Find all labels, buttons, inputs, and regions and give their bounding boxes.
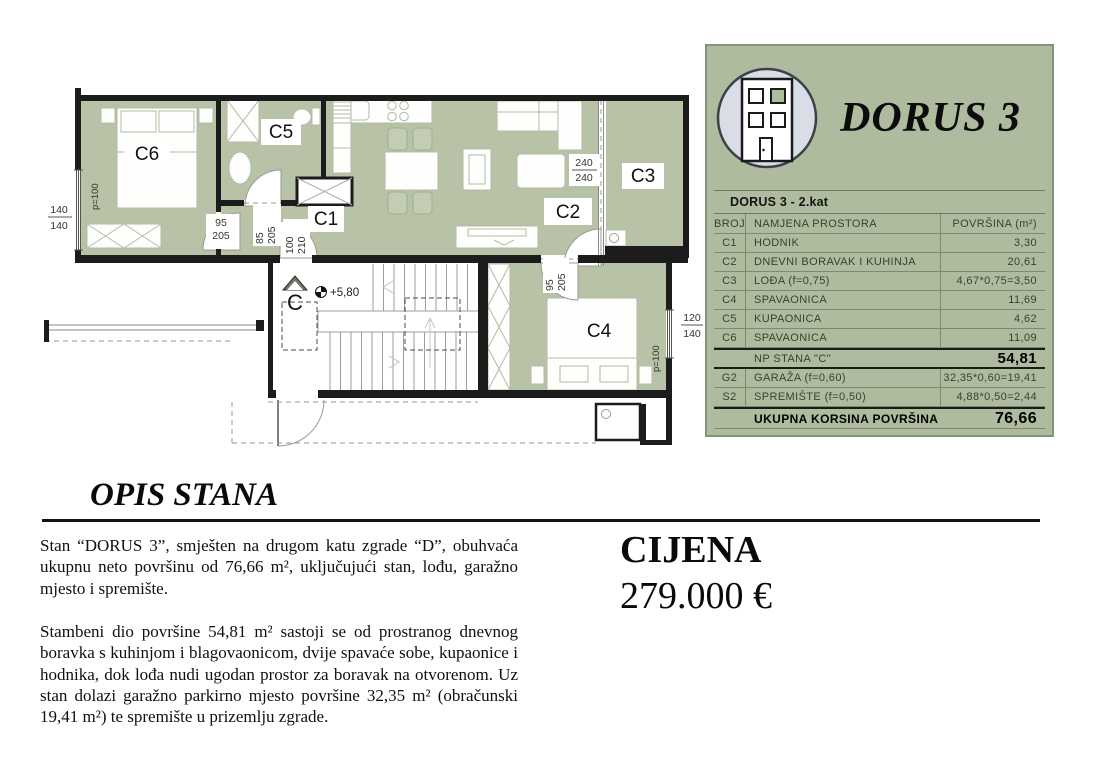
total-label: UKUPNA KORSINA POVRŠINA bbox=[746, 409, 941, 428]
divider-rule bbox=[42, 519, 1040, 522]
col-namjena: NAMJENA PROSTORA bbox=[746, 214, 941, 233]
section-marker: C +5,80 bbox=[283, 276, 359, 315]
brochure-page: C +5,80 C6 C5 C1 C2 C3 C4 140 140 120 bbox=[0, 0, 1095, 774]
dim-right-2: 140 bbox=[683, 328, 701, 340]
elevation-label: +5,80 bbox=[330, 287, 359, 299]
table-row: G2 GARAŽA (f=0,60) 32,35*0,60=19,41 bbox=[714, 369, 1045, 388]
shaft bbox=[297, 178, 352, 205]
alcove bbox=[596, 404, 640, 440]
info-panel: DORUS 3 DORUS 3 - 2.kat BROJ NAMJENA PRO… bbox=[705, 44, 1054, 437]
cell-namjena: GARAŽA (f=0,60) bbox=[746, 369, 941, 387]
cell-povrsina: 11,69 bbox=[941, 291, 1045, 309]
subtotal-row: NP STANA "C" 54,81 bbox=[714, 348, 1045, 369]
cell-povrsina: 3,30 bbox=[941, 234, 1045, 252]
door-c6-h: 205 bbox=[212, 230, 230, 242]
room-label-c6: C6 bbox=[135, 144, 159, 165]
room-label-c3: C3 bbox=[631, 166, 655, 187]
cell-broj: C2 bbox=[714, 253, 746, 271]
cell-namjena: KUPAONICA bbox=[746, 310, 941, 328]
cell-broj: G2 bbox=[714, 369, 746, 387]
floor-plan: C +5,80 C6 C5 C1 C2 C3 C4 140 140 120 bbox=[0, 0, 710, 470]
room-label-c4: C4 bbox=[587, 321, 612, 342]
room-label-c2: C2 bbox=[556, 202, 580, 223]
door-entry-w: 100 bbox=[284, 236, 296, 254]
door-c5-w: 85 bbox=[254, 232, 266, 244]
table-row: C6 SPAVAONICA 11,09 bbox=[714, 329, 1045, 348]
cell-namjena: SPAVAONICA bbox=[746, 329, 941, 347]
dim-balcony-1: 240 bbox=[575, 157, 593, 169]
cell-broj bbox=[714, 350, 746, 367]
cell-povrsina: 20,61 bbox=[941, 253, 1045, 271]
logo-row: DORUS 3 bbox=[707, 46, 1052, 190]
parapet-right: p=100 bbox=[651, 345, 662, 372]
window-right bbox=[665, 310, 674, 358]
dim-right-1: 120 bbox=[683, 312, 701, 324]
cell-namjena: LOĐA (f=0,75) bbox=[746, 272, 941, 290]
price-label: CIJENA bbox=[620, 528, 761, 572]
cell-povrsina: 4,62 bbox=[941, 310, 1045, 328]
room-label-c5: C5 bbox=[269, 122, 293, 143]
subtotal-label: NP STANA "C" bbox=[746, 350, 941, 367]
door-c6-w: 95 bbox=[215, 217, 227, 229]
cell-broj bbox=[714, 409, 746, 428]
table-row: C3 LOĐA (f=0,75) 4,67*0,75=3,50 bbox=[714, 272, 1045, 291]
cell-povrsina: 32,35*0,60=19,41 bbox=[941, 369, 1045, 387]
dim-left-1: 140 bbox=[50, 204, 68, 216]
cell-namjena: DNEVNI BORAVAK I KUHINJA bbox=[746, 253, 941, 271]
cell-broj: S2 bbox=[714, 388, 746, 406]
description-paragraph-1: Stan “DORUS 3”, smješten na drugom katu … bbox=[40, 535, 518, 599]
table-row: C5 KUPAONICA 4,62 bbox=[714, 310, 1045, 329]
door-c4-w: 95 bbox=[544, 279, 556, 291]
cell-broj: C6 bbox=[714, 329, 746, 347]
cell-broj: C3 bbox=[714, 272, 746, 290]
col-povrsina: POVRŠINA (m²) bbox=[941, 214, 1045, 233]
table-row: C4 SPAVAONICA 11,69 bbox=[714, 291, 1045, 310]
cell-povrsina: 11,09 bbox=[941, 329, 1045, 347]
total-row: UKUPNA KORSINA POVRŠINA 76,66 bbox=[714, 407, 1045, 429]
col-broj: BROJ bbox=[714, 214, 746, 233]
cell-namjena: HODNIK bbox=[746, 234, 941, 252]
cell-broj: C1 bbox=[714, 234, 746, 252]
price-value: 279.000 € bbox=[620, 574, 772, 618]
total-value: 76,66 bbox=[941, 409, 1045, 428]
building-icon bbox=[715, 66, 819, 170]
section-letter: C bbox=[287, 290, 303, 315]
dim-left-2: 140 bbox=[50, 220, 68, 232]
cell-broj: C4 bbox=[714, 291, 746, 309]
dim-balcony-2: 240 bbox=[575, 172, 593, 184]
staircase bbox=[282, 264, 478, 390]
table-title: DORUS 3 - 2.kat bbox=[714, 190, 1045, 214]
table-row: C2 DNEVNI BORAVAK I KUHINJA 20,61 bbox=[714, 253, 1045, 272]
parapet-left: p=100 bbox=[90, 183, 101, 210]
subtotal-value: 54,81 bbox=[941, 350, 1045, 367]
area-table: DORUS 3 - 2.kat BROJ NAMJENA PROSTORA PO… bbox=[714, 190, 1045, 429]
cell-povrsina: 4,67*0,75=3,50 bbox=[941, 272, 1045, 290]
cell-namjena: SPREMIŠTE (f=0,50) bbox=[746, 388, 941, 406]
table-row: C1 HODNIK 3,30 bbox=[714, 234, 1045, 253]
project-title: DORUS 3 bbox=[819, 94, 1042, 142]
door-c4-h: 205 bbox=[556, 273, 568, 291]
cell-broj: C5 bbox=[714, 310, 746, 328]
room-label-c1: C1 bbox=[314, 209, 338, 230]
cell-povrsina: 4,88*0,50=2,44 bbox=[941, 388, 1045, 406]
description-paragraph-2: Stambeni dio površine 54,81 m² sastoji s… bbox=[40, 621, 518, 727]
table-column-headers: BROJ NAMJENA PROSTORA POVRŠINA (m²) bbox=[714, 214, 1045, 234]
description-heading: OPIS STANA bbox=[90, 477, 278, 514]
cell-namjena: SPAVAONICA bbox=[746, 291, 941, 309]
door-c5-h: 205 bbox=[266, 226, 278, 244]
door-entry-h: 210 bbox=[296, 236, 308, 254]
table-row: S2 SPREMIŠTE (f=0,50) 4,88*0,50=2,44 bbox=[714, 388, 1045, 407]
